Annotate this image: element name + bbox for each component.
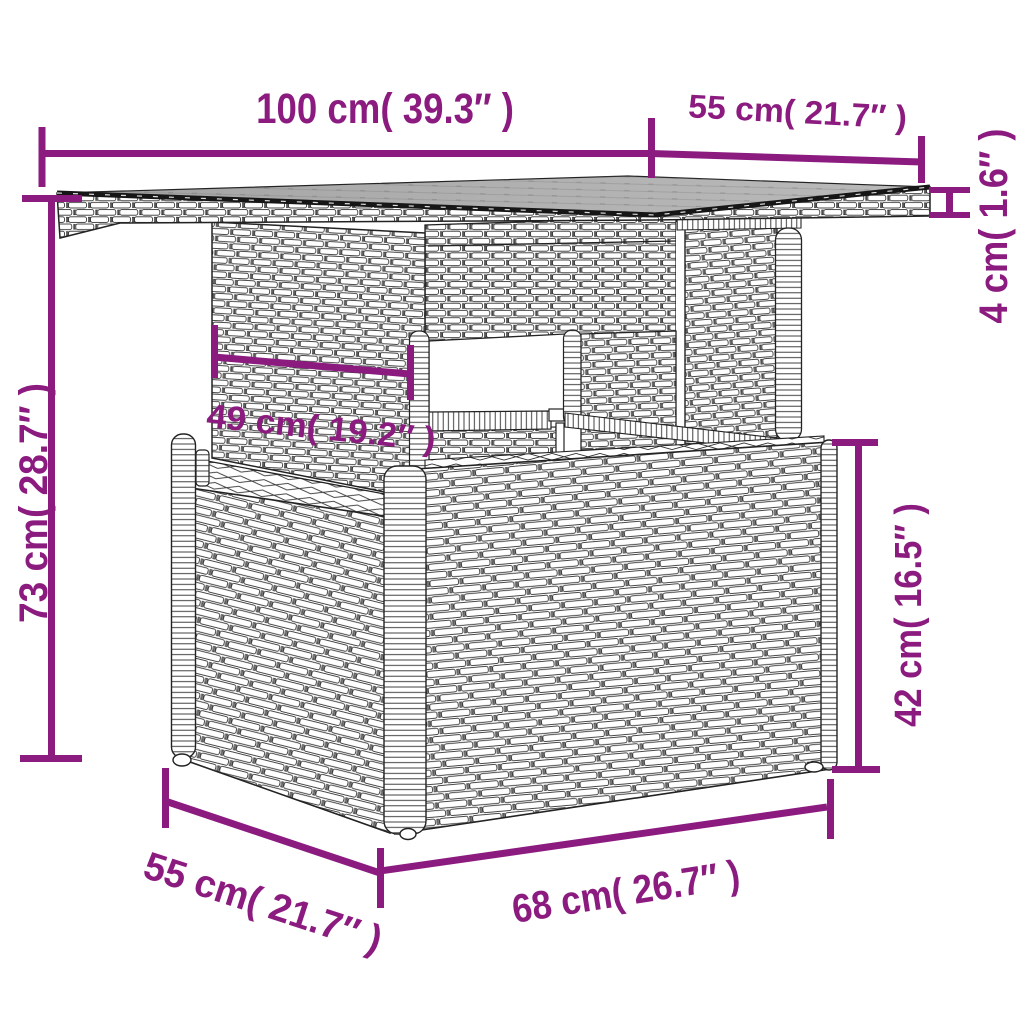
svg-text:4 cm( 1.6″ ): 4 cm( 1.6″ ) bbox=[971, 129, 1016, 324]
svg-text:100 cm( 39.3″ ): 100 cm( 39.3″ ) bbox=[256, 85, 514, 132]
svg-text:42 cm( 16.5″ ): 42 cm( 16.5″ ) bbox=[886, 503, 929, 727]
svg-text:73 cm( 28.7″ ): 73 cm( 28.7″ ) bbox=[12, 383, 57, 623]
